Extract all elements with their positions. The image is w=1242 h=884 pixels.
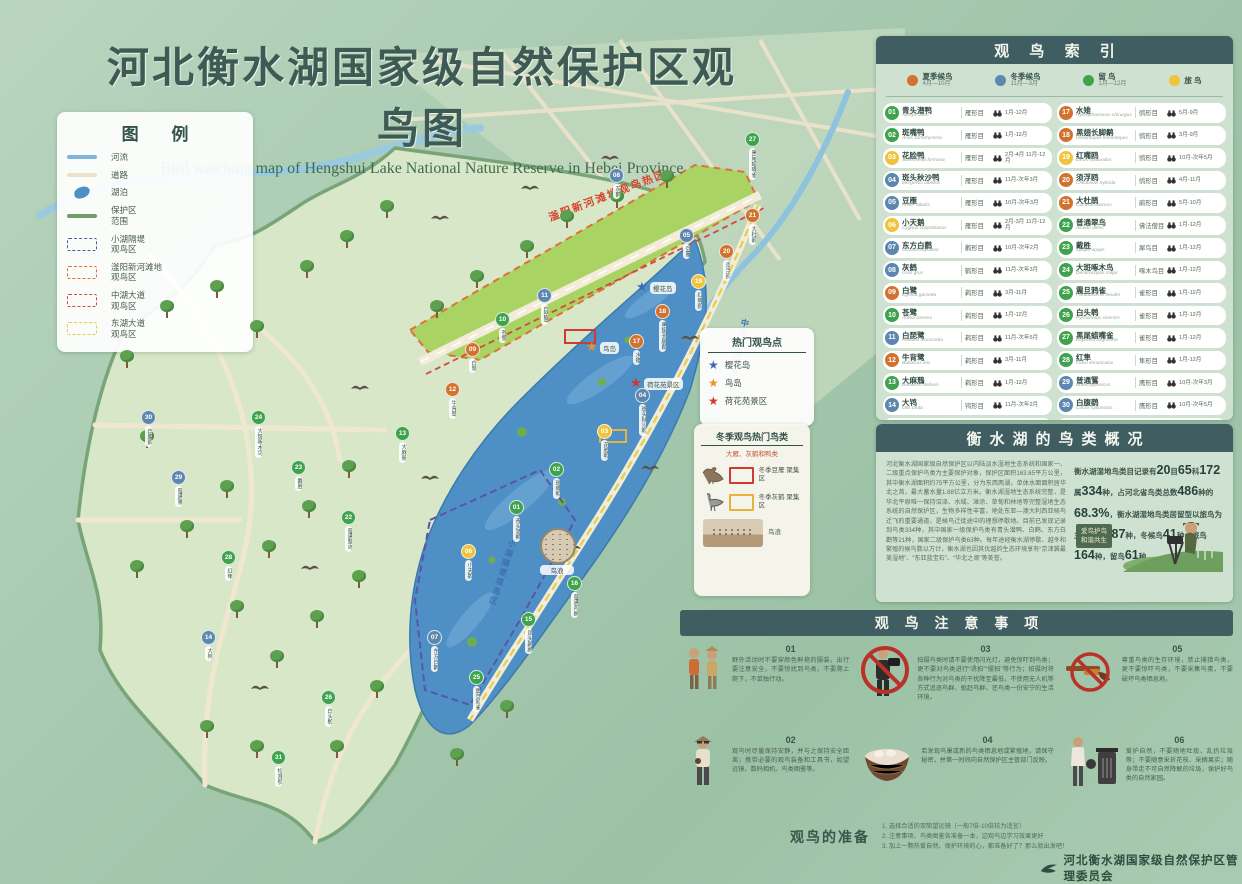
divider xyxy=(1135,355,1136,366)
bird-index-row: 25震旦鸦雀Paradoxornis heudei雀形目1月-12月 xyxy=(1057,283,1226,303)
marker-bird-name: 短耳鸮 xyxy=(275,766,283,787)
bird-name-latin: Pycnonotus sinensis xyxy=(1076,317,1132,322)
bird-index-row: 14大鸨Otis tarda鸨形目11月-次年2月 xyxy=(883,396,1052,416)
tree-icon xyxy=(340,230,354,248)
bird-months: 4月-11月 xyxy=(1179,177,1222,183)
map-bird-marker: 22普通翠鸟 xyxy=(342,510,355,552)
marker-number-badge: 22 xyxy=(341,510,356,525)
divider xyxy=(961,107,962,118)
zone_zhonghu-swatch-icon xyxy=(67,294,97,307)
map-bird-marker: 20须浮鸥 xyxy=(720,244,733,281)
bird-number-badge: 05 xyxy=(885,196,899,210)
map-bird-marker: 25震旦鸦雀 xyxy=(470,670,483,712)
stat-number: 164 xyxy=(1074,548,1095,562)
preparation-lines: 1. 选择合适的双筒望远镜（一般7倍-10倍较为适宜）2. 注意事项、鸟类图鉴各… xyxy=(882,822,1068,852)
binoculars-icon xyxy=(1167,149,1177,167)
birdwave-label: 鸟浪 xyxy=(540,565,574,575)
reserve-logo-icon xyxy=(1040,860,1057,876)
bird-name-latin: Anser fabalis xyxy=(902,204,958,209)
bird-index-row: 13大麻鳽Botaurus stellaris鹈形目1月-12月 xyxy=(883,373,1052,393)
tree-icon xyxy=(660,170,674,188)
preparation-block: 观鸟的准备 1. 选择合适的双筒望远镜（一般7倍-10倍较为适宜）2. 注意事项… xyxy=(790,822,1068,852)
marker-number-badge: 17 xyxy=(629,334,644,349)
tree-icon xyxy=(470,270,484,288)
binoculars-icon xyxy=(1167,171,1177,189)
marker-number-badge: 25 xyxy=(469,670,484,685)
bird-index-column-1: 01青头潜鸭Aythya baeri雁形目1月-12月02斑嘴鸭Anas zon… xyxy=(883,103,1052,420)
bird-number-badge: 25 xyxy=(1059,286,1073,300)
tree-icon xyxy=(302,500,316,518)
footer-org-name: 河北衡水湖国家级自然保护区管理委员会 xyxy=(1063,852,1242,884)
overview-stats: 衡水湖湿地鸟类目记录有20目65科172属334种，占河北省鸟类总数486种的6… xyxy=(1074,460,1223,566)
legend-item-label: 保护区 范围 xyxy=(111,205,137,226)
marker-number-badge: 16 xyxy=(567,576,582,591)
legend-item-label: 河流 xyxy=(111,152,128,163)
marker-bird-name: 黑尾蜡嘴雀 xyxy=(749,148,757,180)
bird-order: 隼形目 xyxy=(1139,356,1167,365)
zone-box-swatch xyxy=(729,494,754,511)
birdwave-thumb-label: 鸟浪 xyxy=(768,529,781,537)
legend-item-label: 东湖大道 观鸟区 xyxy=(111,318,145,339)
map-bird-marker: 14大鸨 xyxy=(202,630,215,661)
bird-order: 雁形目 xyxy=(965,198,993,207)
bird-number-badge: 17 xyxy=(1059,106,1073,120)
bird-order: 雀形目 xyxy=(1139,288,1167,297)
marker-number-badge: 14 xyxy=(201,630,216,645)
map-bird-marker: 07东方白鹳 xyxy=(428,630,441,672)
precaution-text: 尊重鸟类的生存环境，禁止捕猎鸟类，更不要惊吓鸟类，不要采集鸟蛋，不要破坏鸟类栖息… xyxy=(1122,656,1233,684)
bird-names: 大麻鳽Botaurus stellaris xyxy=(902,377,958,389)
legend-item-label: 中湖大道 观鸟区 xyxy=(111,290,145,311)
star-icon: ★ xyxy=(708,359,719,371)
precaution-text: 若发现鸟巢或新的鸟类栖息地或繁殖地，请保守秘密，并第一时间向自然保护区主管部门反… xyxy=(921,747,1054,766)
bird-order: 雁形目 xyxy=(965,131,993,140)
stat-text: 目 xyxy=(1170,467,1178,476)
marker-bird-name: 豆雁 xyxy=(683,244,691,259)
bird-order: 鸻形目 xyxy=(1139,153,1167,162)
marker-bird-name: 凤头䴙䴘 xyxy=(525,628,533,654)
bird-names: 青头潜鸭Aythya baeri xyxy=(902,107,958,119)
bird-number-badge: 28 xyxy=(1059,353,1073,367)
precaution-text-block: 04若发现鸟巢或新的鸟类栖息地或繁殖地，请保守秘密，并第一时间向自然保护区主管部… xyxy=(921,735,1054,766)
flying-bird-icon xyxy=(250,680,270,698)
binoculars-icon xyxy=(993,261,1003,279)
legend-item-label: 道路 xyxy=(111,170,128,181)
bird-name-latin: Larus ridibundus xyxy=(1076,159,1132,164)
marker-bird-name: 红隼 xyxy=(225,566,233,581)
map-bird-marker: 24大斑啄木鸟 xyxy=(252,410,265,458)
bird-months: 10月-次年5月 xyxy=(1179,155,1222,161)
binoculars-icon xyxy=(993,171,1003,189)
bird-name-latin: Anas zonorhyncha xyxy=(902,137,958,142)
binoculars-icon xyxy=(993,216,1003,234)
binoculars-icon xyxy=(1167,104,1177,122)
zone-box-swatch xyxy=(729,467,754,484)
flying-bird-icon xyxy=(640,460,660,478)
precaution-text-block: 06爱护自然，不要随地吐痰、乱扔垃圾等；不要随意采折花枝、采摘果实；随身带走不可… xyxy=(1126,735,1233,784)
bird-names: 红嘴鸥Larus ridibundus xyxy=(1076,152,1132,164)
hotspot-label: 鸟岛 xyxy=(725,377,742,389)
bird-months: 10月-次年5月 xyxy=(1179,402,1222,408)
bird-months: 1月-12月 xyxy=(1179,267,1222,273)
bird-order: 鸻形目 xyxy=(1139,176,1167,185)
bird-index-row: 29普通鵟Buteo japonicus鹰形目10月-次年3月 xyxy=(1057,373,1226,393)
flying-bird-icon xyxy=(600,150,620,168)
winter-popular-card: 冬季观鸟热门鸟类 大雁、灰鹤和鸭类 冬季豆雁 聚集区冬季灰鹤 聚集区 鸟浪 xyxy=(694,424,810,596)
bird-index-row: 30白腹鹞Circus spilonotus鹰形目10月-次年5月 xyxy=(1057,396,1226,416)
marker-number-badge: 10 xyxy=(495,312,510,327)
marker-number-badge: 21 xyxy=(745,208,760,223)
tree-icon xyxy=(250,320,264,338)
winter-popular-item: 冬季灰鹤 聚集区 xyxy=(701,492,803,512)
legend-item-label: 滏阳新河滩地 观鸟区 xyxy=(111,262,162,283)
marker-bird-name: 大杜鹃 xyxy=(749,224,757,245)
marker-bird-name: 灰鹤 xyxy=(613,184,621,199)
marker-bird-name: 白腹鹞 xyxy=(145,426,153,447)
bird-months: 1月-12月 xyxy=(1179,312,1222,318)
bird-order: 雁形目 xyxy=(965,221,993,230)
bird-index-row: 08灰鹤Grus grus鹤形目11月-次年3月 xyxy=(883,261,1052,281)
binoculars-icon xyxy=(1167,194,1177,212)
trash-icon xyxy=(1064,735,1120,791)
map-bird-marker: 16普通鸬鹚 xyxy=(568,576,581,618)
bird-number-badge: 27 xyxy=(1059,331,1073,345)
bird-index-row: 20须浮鸥Chlidonias hybrida鸻形目4月-11月 xyxy=(1057,171,1226,191)
legend-item: 湖泊 xyxy=(67,187,243,198)
marker-number-badge: 11 xyxy=(537,288,552,303)
bird-number-badge: 29 xyxy=(1059,376,1073,390)
bird-name-latin: Himantopus himantopus xyxy=(1076,137,1132,142)
bird-order: 鹳形目 xyxy=(965,243,993,252)
divider xyxy=(961,265,962,276)
birdwave-photo: 鸟浪 xyxy=(540,528,574,575)
tree-icon xyxy=(352,570,366,588)
binoculars-icon xyxy=(993,396,1003,414)
bird-months: 11月-次年5月 xyxy=(1005,335,1048,341)
bird-number-badge: 18 xyxy=(1059,128,1073,142)
binoculars-icon xyxy=(993,306,1003,324)
marker-number-badge: 23 xyxy=(291,460,306,475)
flying-bird-icon xyxy=(430,210,450,228)
bird-name-latin: Paradoxornis heudei xyxy=(1076,294,1132,299)
divider xyxy=(1135,310,1136,321)
bird-number-badge: 21 xyxy=(1059,196,1073,210)
map-hotspot-star-icon: ★ xyxy=(636,280,648,293)
tree-icon xyxy=(120,350,134,368)
bird-index-row: 27黑尾蜡嘴雀Eophona migratoria雀形目1月-12月 xyxy=(1057,328,1226,348)
divider xyxy=(1135,130,1136,141)
bird-index-row: 31短耳鸮Asio flammeus鸮形目1月-12月 xyxy=(1057,418,1226,420)
marker-number-badge: 13 xyxy=(395,426,410,441)
tree-icon xyxy=(380,200,394,218)
bird-order: 啄木鸟目 xyxy=(1139,266,1167,275)
binoculars-icon xyxy=(993,284,1003,302)
preparation-line: 3. 加上一颗热爱自然、保护环境的心，都准备好了？那么就出发吧！ xyxy=(882,842,1068,852)
bird-number-badge: 06 xyxy=(885,218,899,232)
map-bird-marker: 27黑尾蜡嘴雀 xyxy=(746,132,759,180)
flying-bird-icon xyxy=(520,180,540,198)
tree-icon xyxy=(342,460,356,478)
lake-swatch-icon xyxy=(67,187,97,198)
photographer-illustration xyxy=(1103,498,1223,572)
binoculars-icon xyxy=(993,374,1003,392)
bird-name-latin: Mergellus albellus xyxy=(902,182,958,187)
divider xyxy=(961,400,962,411)
marker-bird-name: 白琵鹭 xyxy=(541,304,549,325)
bird-order: 犀鸟目 xyxy=(1139,243,1167,252)
bird-order: 雁形目 xyxy=(965,176,993,185)
bird-index-row: 09白鹭Egretta garzetta鹈形目3月-11月 xyxy=(883,283,1052,303)
tree-icon xyxy=(230,600,244,618)
bird-order: 鸻形目 xyxy=(1139,131,1167,140)
precaution-text-block: 02观鸟时尽量保持安静，并与之保持安全距离；携带必要的观鸟装备和工具书，如望远镜… xyxy=(732,735,849,775)
stat-number: 65 xyxy=(1178,463,1192,477)
bird-months: 1月-12月 xyxy=(1005,380,1048,386)
season-label: 旅 鸟 xyxy=(1184,76,1201,85)
binoculars-icon xyxy=(993,194,1003,212)
bird-name-latin: Botaurus stellaris xyxy=(902,384,958,389)
bird-months: 2月-3月 11月-12月 xyxy=(1005,219,1048,231)
zone_donghu-swatch-icon xyxy=(67,322,97,335)
map-hotspot-star-icon: ★ xyxy=(586,340,598,353)
preparation-line: 1. 选择合适的双筒望远镜（一般7倍-10倍较为适宜） xyxy=(882,822,1068,832)
bird-names: 普通翠鸟Alcedo atthis xyxy=(1076,219,1132,231)
binoculars-icon xyxy=(993,351,1003,369)
season-label: 冬季候鸟11月—3月 xyxy=(1010,72,1040,88)
bird-months: 11月-次年3月 xyxy=(1005,177,1048,183)
bird-number-badge: 24 xyxy=(1059,263,1073,277)
bird-months: 10月-次年3月 xyxy=(1005,200,1048,206)
marker-bird-name: 东方白鹳 xyxy=(431,646,439,672)
map-bird-marker: 13大麻鳽 xyxy=(396,426,409,463)
legend-item: 东湖大道 观鸟区 xyxy=(67,318,243,339)
divider xyxy=(961,287,962,298)
poster-root: 滏阳新河滩地观鸟热区 小湖隔堤观鸟区 中湖大道观鸟区 鸟浪 河北衡水湖国家级自然… xyxy=(0,0,1242,884)
divider xyxy=(1135,287,1136,298)
binoculars-icon xyxy=(1167,239,1177,257)
season-legend: 夏季候鸟4月—10月冬季候鸟11月—3月留 鸟1月—12月旅 鸟 xyxy=(886,64,1223,97)
birdwave-image xyxy=(540,528,576,564)
precaution-text: 观鸟时尽量保持安静，并与之保持安全距离；携带必要的观鸟装备和工具书，如望远镜、数… xyxy=(732,747,849,775)
bird-months: 3月-11月 xyxy=(1005,290,1048,296)
marker-number-badge: 08 xyxy=(609,168,624,183)
hotspot-label: 荷花苑景区 xyxy=(725,395,768,407)
precaution-text-block: 05尊重鸟类的生存环境，禁止捕猎鸟类，更不要惊吓鸟类，不要采集鸟蛋，不要破坏鸟类… xyxy=(1122,644,1233,684)
boundary-swatch-icon xyxy=(67,214,97,218)
flying-bird-icon xyxy=(680,330,700,348)
bird-name-latin: Chlidonias hybrida xyxy=(1076,182,1132,187)
marker-number-badge: 09 xyxy=(465,342,480,357)
marker-bird-name: 花脸鸭 xyxy=(601,440,609,461)
tree-icon xyxy=(180,520,194,538)
bird-number-badge: 14 xyxy=(885,398,899,412)
bird-names: 水雉Hydrophasianus chirurgus xyxy=(1076,107,1132,119)
overview-paragraph: 河北衡水湖国家级自然保护区以内陆淡水湿地生态系统和国家一、二级重点保护鸟类为主要… xyxy=(886,460,1066,566)
map-bird-marker: 11白琵鹭 xyxy=(538,288,551,325)
binoculars-icon xyxy=(1167,126,1177,144)
marker-bird-name: 震旦鸦雀 xyxy=(473,686,481,712)
precaution-item: 01野外活动时不要穿颜色鲜艳的服装，出行要注意安全，不要惊扰到鸟类，不要爬上爬下… xyxy=(680,644,849,729)
precautions-header: 观 鸟 注 意 事 项 xyxy=(680,610,1233,636)
season-range: 4月—10月 xyxy=(922,81,952,88)
divider xyxy=(961,332,962,343)
bird-order: 鹃形目 xyxy=(1139,198,1167,207)
divider xyxy=(961,310,962,321)
season-dot-icon xyxy=(1169,75,1180,86)
marker-number-badge: 24 xyxy=(251,410,266,425)
tree-icon xyxy=(450,748,464,766)
marker-number-badge: 30 xyxy=(141,410,156,425)
tree-icon xyxy=(270,650,284,668)
bird-name-latin: Hydrophasianus chirurgus xyxy=(1076,114,1132,119)
stat-text: 衡水湖湿地鸟类目记录有 xyxy=(1074,467,1157,476)
bird-number-badge: 07 xyxy=(885,241,899,255)
binoculars-icon xyxy=(1167,329,1177,347)
bird-order: 雀形目 xyxy=(1139,333,1167,342)
bird-name-latin: Bubulcus ibis xyxy=(902,362,958,367)
divider xyxy=(1135,152,1136,163)
binoculars-icon xyxy=(993,419,1003,420)
marker-number-badge: 03 xyxy=(597,424,612,439)
bird-names: 东方白鹳Ciconia boyciana xyxy=(902,242,958,254)
divider xyxy=(961,197,962,208)
bird-months: 3月-11月 xyxy=(1005,357,1048,363)
no-gun-icon xyxy=(1064,644,1116,700)
map-bird-marker: 05豆雁 xyxy=(680,228,693,259)
marker-bird-name: 须浮鸥 xyxy=(723,260,731,281)
season-legend-item: 冬季候鸟11月—3月 xyxy=(995,72,1040,88)
bird-months: 2月-4月 11月-12月 xyxy=(1005,152,1048,164)
binoculars-icon xyxy=(1167,351,1177,369)
bird-names: 须浮鸥Chlidonias hybrida xyxy=(1076,174,1132,186)
map-bird-marker: 12牛背鹭 xyxy=(446,382,459,419)
map-hotspot-label: 樱花岛 xyxy=(650,282,676,294)
bird-name-latin: Egretta garzetta xyxy=(902,294,958,299)
binoculars-icon xyxy=(993,104,1003,122)
marker-bird-name: 大鸨 xyxy=(205,646,213,661)
marker-bird-name: 黑翅长脚鹬 xyxy=(659,320,667,352)
crane-icon xyxy=(701,492,727,512)
precaution-number: 01 xyxy=(732,644,849,654)
marker-number-badge: 07 xyxy=(427,630,442,645)
map-bird-marker: 03花脸鸭 xyxy=(598,424,611,461)
bird-index-row: 10苍鹭Ardea cinerea鹈形目1月-12月 xyxy=(883,306,1052,326)
bird-number-badge: 10 xyxy=(885,308,899,322)
bird-name-latin: Platalea leucorodia xyxy=(902,339,958,344)
legend-item: 道路 xyxy=(67,170,243,181)
marker-number-badge: 12 xyxy=(445,382,460,397)
winter-popular-label: 冬季灰鹤 聚集区 xyxy=(759,494,803,511)
divider xyxy=(1135,242,1136,253)
stat-number: 172 xyxy=(1199,463,1220,477)
precaution-text-block: 01野外活动时不要穿颜色鲜艳的服装，出行要注意安全，不要惊扰到鸟类，不要爬上爬下… xyxy=(732,644,849,684)
bird-order: 鹰形目 xyxy=(1139,378,1167,387)
marker-number-badge: 31 xyxy=(271,750,286,765)
precaution-number: 02 xyxy=(732,735,849,745)
bird-months: 1月-12月 xyxy=(1005,312,1048,318)
bird-months: 1月-12月 xyxy=(1005,110,1048,116)
marker-number-badge: 04 xyxy=(635,388,650,403)
tree-icon xyxy=(330,740,344,758)
marker-number-badge: 27 xyxy=(745,132,760,147)
marker-bird-name: 戴胜 xyxy=(295,476,303,491)
map-bird-marker: 08灰鹤 xyxy=(610,168,623,199)
map-bird-marker: 04斑头秋沙鸭 xyxy=(636,388,649,436)
bird-names: 牛背鹭Bubulcus ibis xyxy=(902,354,958,366)
winter-popular-label: 冬季豆雁 聚集区 xyxy=(759,467,803,484)
bird-index-row: 26白头鹎Pycnonotus sinensis雀形目1月-12月 xyxy=(1057,306,1226,326)
overview-header: 衡水湖的鸟类概况 xyxy=(876,424,1233,452)
binoculars-icon xyxy=(993,126,1003,144)
tree-icon xyxy=(262,540,276,558)
bird-index-row: 11白琵鹭Platalea leucorodia鹈形目11月-次年5月 xyxy=(883,328,1052,348)
bird-names: 白头鹎Pycnonotus sinensis xyxy=(1076,309,1132,321)
winter-photo-row: 鸟浪 xyxy=(701,519,803,547)
legend-title: 图 例 xyxy=(67,120,243,145)
binoculars-icon xyxy=(1167,374,1177,392)
precaution-number: 05 xyxy=(1122,644,1233,654)
marker-number-badge: 05 xyxy=(679,228,694,243)
bird-name-latin: Sibirionetta formosa xyxy=(902,159,958,164)
bird-index-row: 28红隼Falco tinnunculus隼形目1月-12月 xyxy=(1057,351,1226,371)
birdwave-thumbnail xyxy=(703,519,763,547)
bird-name-latin: Eophona migratoria xyxy=(1076,339,1132,344)
season-dot-icon xyxy=(907,75,918,86)
stat-text: 种，占河北省鸟类总数 xyxy=(1102,488,1177,497)
divider xyxy=(1135,220,1136,231)
tree-icon xyxy=(500,700,514,718)
bird-name-latin: Aythya baeri xyxy=(902,114,958,119)
map-bird-marker: 02斑嘴鸭 xyxy=(550,462,563,499)
flying-bird-icon xyxy=(420,470,440,488)
bird-name-latin: Cuculus canorus xyxy=(1076,204,1132,209)
bird-index-header: 观 鸟 索 引 xyxy=(876,36,1233,64)
bird-order: 鹈形目 xyxy=(965,356,993,365)
bird-name-latin: Grus grus xyxy=(902,272,958,277)
precaution-item: 05尊重鸟类的生存环境，禁止捕猎鸟类，更不要惊吓鸟类，不要采集鸟蛋，不要破坏鸟类… xyxy=(1064,644,1233,729)
hikers-icon xyxy=(680,644,726,700)
binoculars-icon xyxy=(680,735,726,791)
marker-number-badge: 26 xyxy=(321,690,336,705)
bird-number-badge: 22 xyxy=(1059,218,1073,232)
bird-index-row: 05豆雁Anser fabalis雁形目10月-次年3月 xyxy=(883,193,1052,213)
bird-number-badge: 09 xyxy=(885,286,899,300)
divider xyxy=(1135,197,1136,208)
bird-index-list: 01青头潜鸭Aythya baeri雁形目1月-12月02斑嘴鸭Anas zon… xyxy=(876,97,1233,420)
map-bird-marker: 10苍鹭 xyxy=(496,312,509,343)
season-legend-item: 旅 鸟 xyxy=(1169,75,1201,86)
bird-index-row: 23戴胜Upupa epops犀鸟目1月-12月 xyxy=(1057,238,1226,258)
bird-names: 黑翅长脚鹬Himantopus himantopus xyxy=(1076,129,1132,141)
bird-names: 斑头秋沙鸭Mergellus albellus xyxy=(902,174,958,186)
map-bird-marker: 29普通鵟 xyxy=(172,470,185,507)
hotspot-item: ★荷花苑景区 xyxy=(708,395,806,407)
divider xyxy=(1135,332,1136,343)
bird-index-row: 01青头潜鸭Aythya baeri雁形目1月-12月 xyxy=(883,103,1052,123)
binoculars-icon xyxy=(993,239,1003,257)
precaution-number: 04 xyxy=(921,735,1054,745)
map-bird-marker: 09白鹭 xyxy=(466,342,479,373)
tree-icon xyxy=(520,240,534,258)
binoculars-icon xyxy=(993,149,1003,167)
bird-months: 3月-9月 xyxy=(1179,132,1222,138)
goose-icon xyxy=(701,465,727,485)
hotspot-item: ★樱花岛 xyxy=(708,359,806,371)
precaution-item: 06爱护自然，不要随地吐痰、乱扔垃圾等；不要随意采折花枝、采摘果实；随身带走不可… xyxy=(1064,735,1233,820)
overview-body: 河北衡水湖国家级自然保护区以内陆淡水湿地生态系统和国家一、二级重点保护鸟类为主要… xyxy=(876,452,1233,574)
marker-bird-name: 白头鹎 xyxy=(325,706,333,727)
bird-number-badge: 19 xyxy=(1059,151,1073,165)
